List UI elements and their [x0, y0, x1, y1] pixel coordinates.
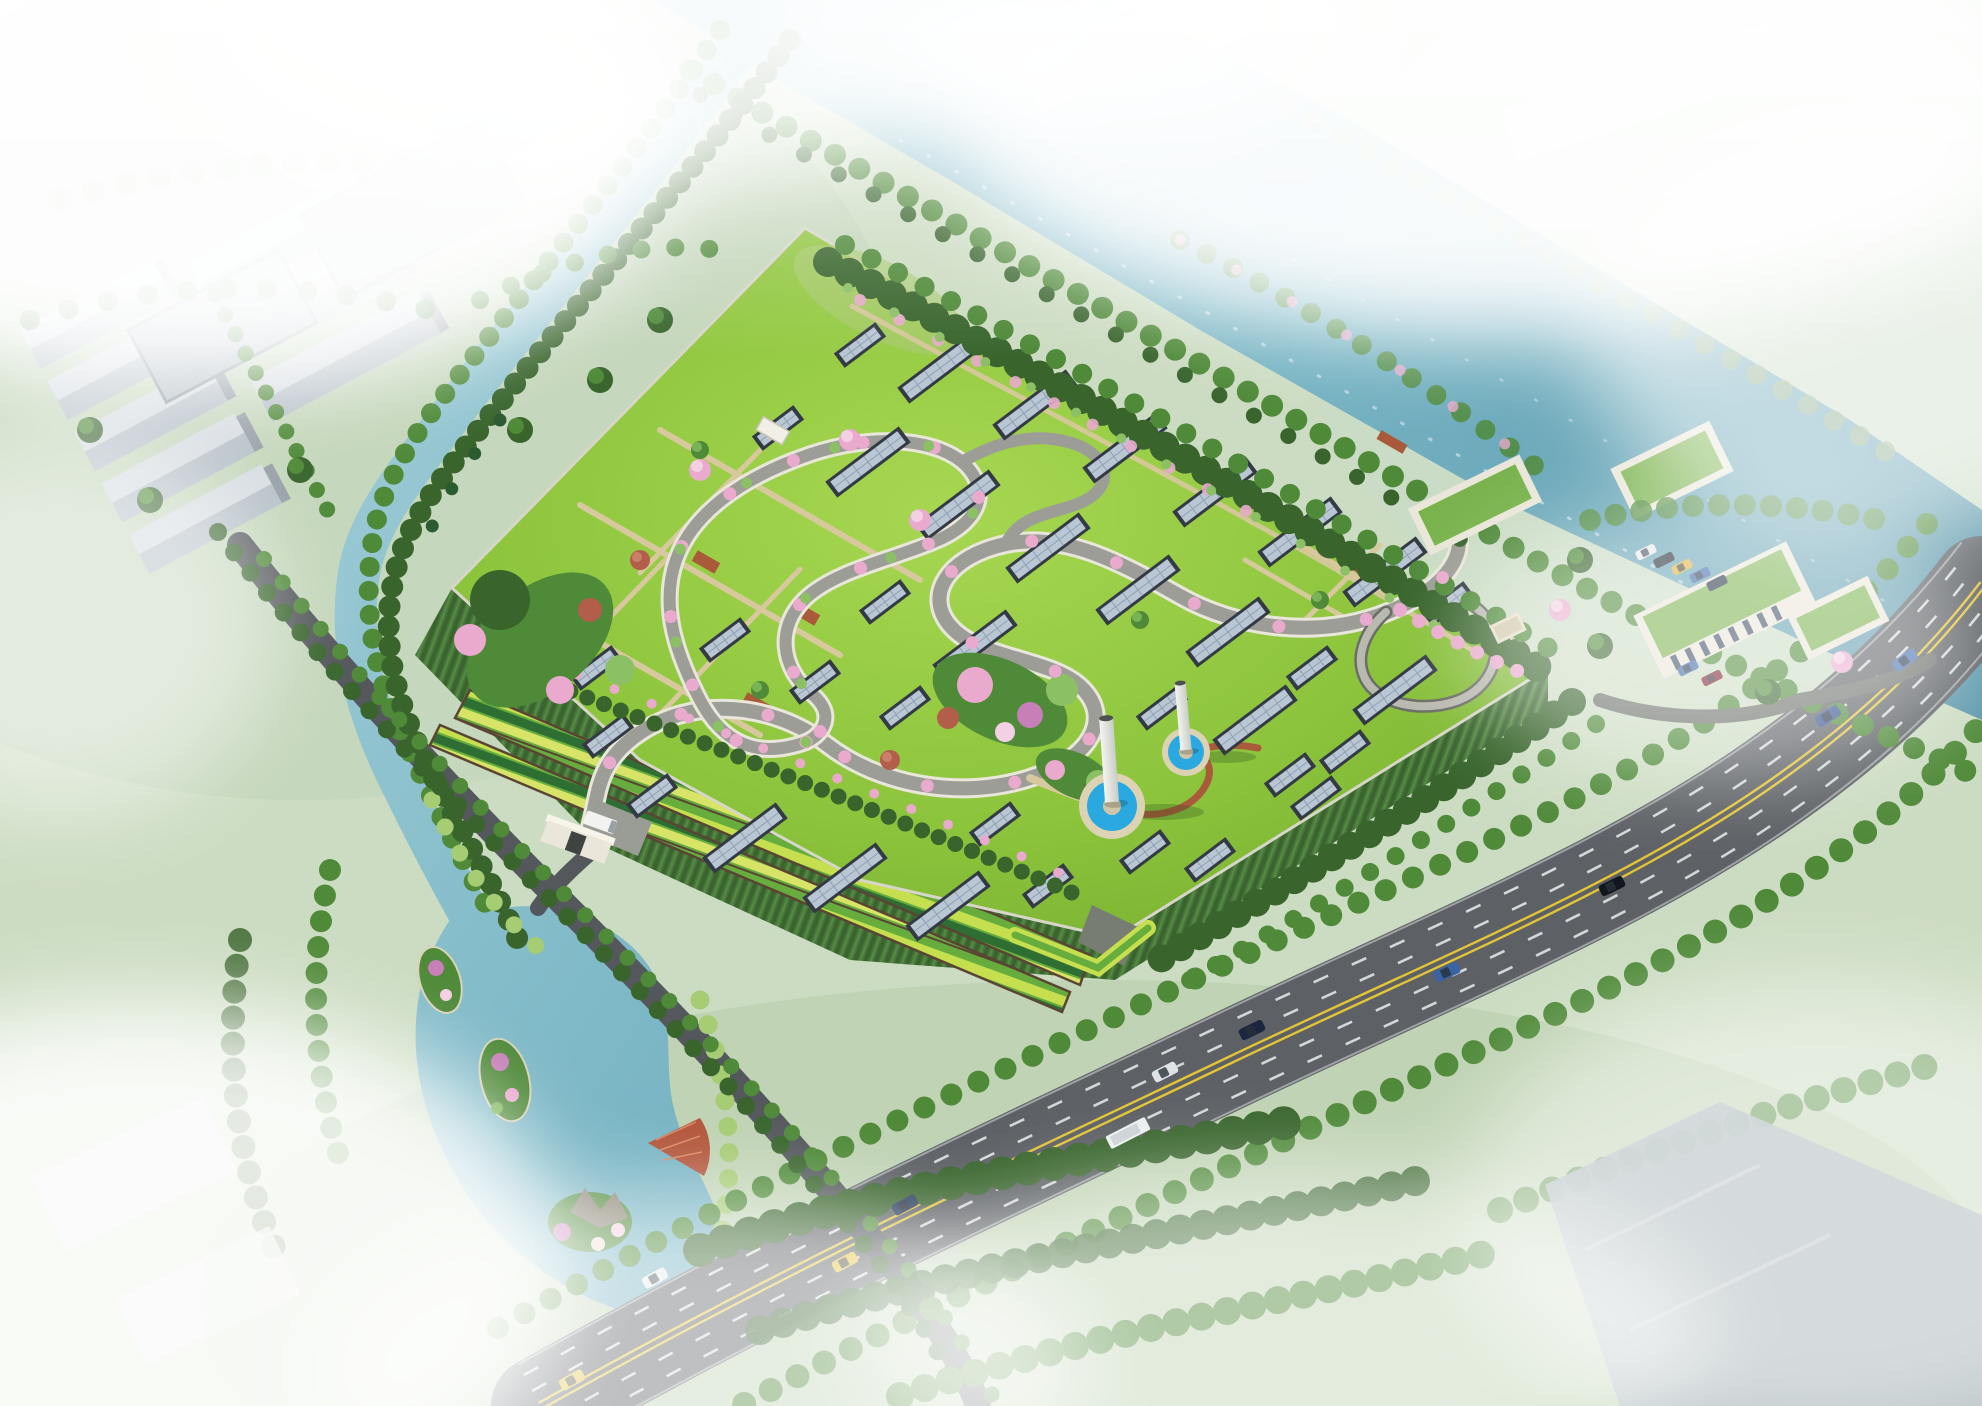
red-leaf-cluster [937, 707, 959, 729]
blossom-cluster [957, 667, 993, 703]
blossom-cluster [1017, 702, 1043, 728]
haze-veil [0, 0, 1982, 360]
blossom-cluster [995, 722, 1015, 742]
tree [1131, 611, 1149, 629]
tree [1311, 591, 1329, 609]
tree [507, 417, 533, 443]
aerial-rendering [0, 0, 1982, 1406]
red-leaf-cluster [578, 598, 602, 622]
tree [287, 457, 313, 483]
tree [587, 367, 613, 393]
blossom-tree [689, 459, 711, 481]
blossom-cluster [546, 676, 574, 704]
blossom-cluster [454, 624, 486, 656]
red-leaf-tree [630, 550, 650, 570]
fog-wisp [1460, 500, 1980, 780]
tree [751, 681, 769, 699]
tree [691, 441, 709, 459]
scene-canvas [0, 0, 1982, 1406]
shrub-cluster [470, 570, 530, 630]
red-leaf-tree [880, 750, 900, 770]
shrub-cluster [605, 655, 635, 685]
blossom-tree [839, 429, 861, 451]
shrub-cluster [1046, 674, 1078, 706]
blossom-cluster [1045, 760, 1065, 780]
blossom-tree [909, 509, 931, 531]
